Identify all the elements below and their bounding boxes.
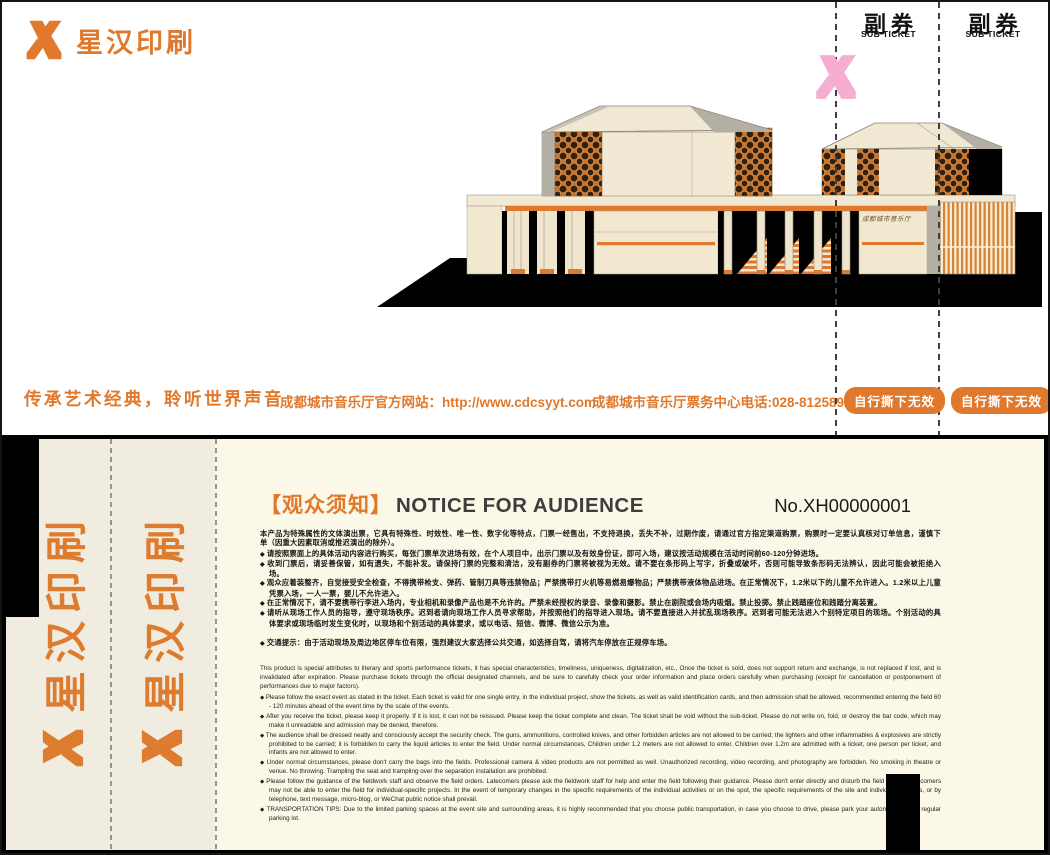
- perforation-line-2: [938, 2, 940, 435]
- sub-ticket-2: 副券 SUB TICKET: [940, 20, 1046, 39]
- stub-perforation-2: [215, 439, 217, 850]
- notice-item: 收到门票后，请妥善保管，如有遗失，不能补发。请保持门票的完整和清洁，没有副券的门…: [260, 559, 941, 579]
- zh-traffic-note: 交通提示：由于活动现场及周边地区停车位有限，强烈建议大家选择公共交通，如选择自驾…: [260, 638, 941, 648]
- registration-mark: [886, 774, 920, 850]
- notice-item: After you receive the ticket, please kee…: [260, 713, 941, 731]
- website-text: 成都城市音乐厅官方网站：http://www.cdcsyyt.com: [280, 391, 596, 411]
- black-corner-mark: [6, 439, 39, 617]
- sub-ticket-1: 副券 SUB TICKET: [838, 20, 939, 39]
- stub-brand-text: 星汉印刷: [33, 513, 94, 713]
- notice-item: Please follow the exact event as stated …: [260, 694, 941, 712]
- brand-x-watermark: [808, 52, 864, 102]
- notice-title-zh: 【观众须知】: [260, 489, 392, 519]
- ticket-back: 星汉印刷 星汉印刷 【观众须知】 NOTICE FOR AUDIENCE No.…: [2, 435, 1048, 855]
- tear-invalid-pill-1: 自行撕下无效: [844, 387, 945, 414]
- notice-item: TRANSPORTATION TIPS: Due to the limited …: [260, 806, 941, 824]
- ticket-front: 星汉印刷: [2, 2, 1048, 435]
- en-notice-list: Please follow the exact event as stated …: [260, 694, 941, 824]
- notice-item: 在正常情况下，请不要携带行李进入场内，专业相机和录像产品也是不允许的。严禁未经授…: [260, 598, 941, 608]
- notice-title-en: NOTICE FOR AUDIENCE: [396, 494, 644, 518]
- ticket-back-body: 星汉印刷 星汉印刷 【观众须知】 NOTICE FOR AUDIENCE No.…: [6, 439, 1044, 850]
- sub-ticket-sublabel: SUB TICKET: [966, 30, 1021, 39]
- brand-x-icon: [22, 18, 66, 62]
- zh-notice-list: 请按照票面上的具体活动内容进行购买，每张门票单次进场有效，在个人项目中，出示门票…: [260, 549, 941, 628]
- notice-item: 请按照票面上的具体活动内容进行购买，每张门票单次进场有效，在个人项目中，出示门票…: [260, 549, 941, 559]
- hotline-text: 成都城市音乐厅票务中心电话:028-81258957: [592, 391, 859, 411]
- notice-item: Under normal circumstances, please don't…: [260, 759, 941, 777]
- stub-brand-text: 星汉印刷: [132, 513, 193, 713]
- stub-perforation-1: [110, 439, 112, 850]
- stub-1: 星汉印刷: [35, 492, 91, 792]
- notice-panel: 【观众须知】 NOTICE FOR AUDIENCE No.XH00000001…: [260, 439, 941, 824]
- brand-logo: 星汉印刷: [22, 18, 196, 62]
- ticket-number: No.XH00000001: [774, 495, 911, 517]
- sub-ticket-label: 副券: [859, 20, 918, 29]
- sub-ticket-label: 副券: [963, 20, 1022, 29]
- stub-brand-x-icon: [139, 725, 185, 771]
- concert-hall-illustration: 成都城市音乐厅: [277, 90, 1047, 322]
- sub-ticket-sublabel: SUB TICKET: [861, 30, 916, 39]
- brand-name: 星汉印刷: [76, 21, 196, 60]
- notice-item: Please follow the guidance of the fieldw…: [260, 778, 941, 805]
- tear-invalid-pill-2: 自行撕下无效: [951, 387, 1050, 414]
- zh-intro: 本产品为特殊属性的文体演出票，它具有特殊性、时效性、唯一性、数字化等特点，门票一…: [260, 529, 941, 548]
- notice-header: 【观众须知】 NOTICE FOR AUDIENCE No.XH00000001: [260, 489, 941, 519]
- stub-2: 星汉印刷: [134, 492, 190, 792]
- building-sign: 成都城市音乐厅: [862, 215, 912, 223]
- notice-item: 请听从现场工作人员的指导，遵守现场秩序。迟到者请向现场工作人员寻求帮助，并按照他…: [260, 608, 941, 628]
- notice-item: 观众应着装整齐，自觉接受安全检查，不得携带枪支、弹药、管制刀具等违禁物品；严禁携…: [260, 578, 941, 598]
- stub-brand-x-icon: [40, 725, 86, 771]
- en-intro: This product is special attributes to li…: [260, 665, 941, 692]
- tagline: 传承艺术经典，聆听世界声音: [24, 386, 284, 411]
- notice-item: The audience shall be dressed neatly and…: [260, 732, 941, 759]
- ticket-proof-sheet: 星汉印刷: [0, 0, 1050, 855]
